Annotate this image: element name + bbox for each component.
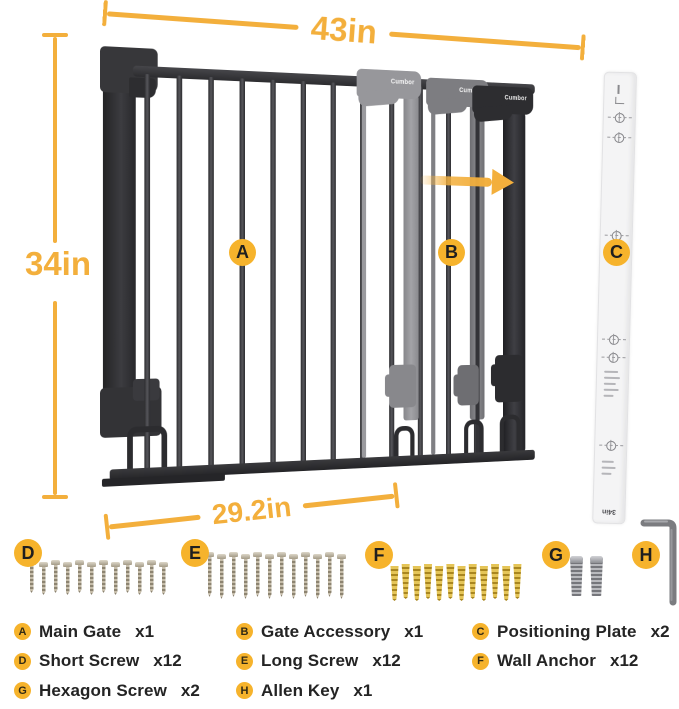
part-badge: H (236, 682, 253, 699)
dimension-line (389, 31, 581, 50)
part-badge: E (236, 653, 253, 670)
short-screw (63, 562, 72, 595)
short-screw (123, 560, 132, 593)
short-screw (75, 560, 84, 593)
screw-head (123, 560, 132, 565)
short-screw (99, 560, 108, 593)
screw-head (265, 554, 274, 559)
wall-anchor (468, 564, 477, 599)
screw-head (111, 562, 120, 567)
plate-mark (617, 85, 619, 94)
positioning-plate-illustration: 34in (592, 72, 637, 525)
screw-shaft (42, 567, 46, 595)
callout-main-gate: A (229, 239, 256, 266)
arrow-shaft (420, 175, 492, 187)
part-name: Positioning Plate (497, 622, 637, 642)
screw-shaft (280, 557, 284, 597)
screw-head (87, 562, 96, 567)
parts-list: A Main Gate x1 B Gate Accessory x1 C Pos… (14, 617, 674, 706)
screw-head (217, 554, 226, 559)
gate-bars (144, 74, 478, 470)
brand-logo: Cumbor (391, 79, 415, 87)
part-name: Main Gate (39, 622, 121, 642)
gate-bar (331, 82, 336, 461)
plate-hole-mark (606, 441, 616, 451)
screw-shaft (340, 559, 344, 599)
plate-text-line (602, 467, 616, 469)
part-name: Gate Accessory (261, 622, 390, 642)
parts-list-item-allen-key: H Allen Key x1 (236, 681, 472, 701)
screw-head (253, 552, 262, 557)
screw-shaft (150, 565, 154, 593)
parts-list-item-positioning-plate: C Positioning Plate x2 (472, 622, 674, 642)
screw-shaft (114, 567, 118, 595)
callout-gate-accessory: B (438, 239, 465, 266)
wall-anchor (424, 564, 433, 599)
dimension-line (53, 37, 57, 243)
screw-shaft (102, 565, 106, 593)
plate-mark (615, 97, 624, 104)
short-screw (87, 562, 96, 595)
overall-width-value: 43in (310, 9, 379, 52)
badge-allen-key: H (632, 541, 660, 569)
long-screw (289, 554, 298, 599)
parts-list-item-main-gate: A Main Gate x1 (14, 622, 236, 642)
screw-shaft (268, 559, 272, 599)
screw-head (99, 560, 108, 565)
wall-anchor (457, 566, 466, 601)
gate-bar (177, 75, 183, 468)
callout-positioning-plate: C (603, 239, 630, 266)
screw-shaft (220, 559, 224, 599)
part-qty: x12 (372, 651, 400, 671)
screw-shaft (304, 557, 308, 597)
parts-list-item-hexagon-screw: G Hexagon Screw x2 (14, 681, 236, 701)
short-screw (51, 560, 60, 593)
wall-anchors-row (390, 564, 522, 599)
wall-anchor (435, 566, 444, 601)
part-qty: x1 (135, 622, 154, 642)
part-badge: C (472, 623, 489, 640)
screw-shaft (232, 557, 236, 597)
badge-hexagon-screw: G (542, 541, 570, 569)
part-badge: A (14, 623, 31, 640)
long-screw (277, 552, 286, 597)
screw-head (229, 552, 238, 557)
wall-anchor (502, 566, 511, 601)
wall-anchor (412, 566, 421, 601)
product-diagram: 43in 34in 29.2in Cumbor Cumbor (0, 0, 679, 709)
screw-head (337, 554, 346, 559)
part-badge: D (14, 653, 31, 670)
screw-head (75, 560, 84, 565)
short-screws-row (27, 560, 168, 593)
screw-shaft (30, 565, 34, 593)
plate-hole-mark (609, 335, 619, 345)
part-qty: x2 (651, 622, 670, 642)
wall-anchor (446, 564, 455, 599)
screw-head (301, 552, 310, 557)
latch-handle: Cumbor (472, 85, 533, 115)
plate-hole-mark (614, 133, 624, 143)
plate-text-line (604, 389, 619, 391)
hexagon-screw (590, 556, 603, 596)
screw-shaft (78, 565, 82, 593)
dimension-tick (580, 34, 586, 60)
latch-rod (431, 105, 435, 454)
plate-print-text: 34in (593, 507, 624, 515)
overall-height-value: 34in (8, 245, 108, 283)
screw-shaft (292, 559, 296, 599)
part-name: Wall Anchor (497, 651, 596, 671)
short-screw (135, 562, 144, 595)
screw-shaft (256, 557, 260, 597)
part-name: Hexagon Screw (39, 681, 167, 701)
long-screw (301, 552, 310, 597)
plate-text-line (601, 473, 611, 475)
screw-head (241, 554, 250, 559)
part-name: Short Screw (39, 651, 139, 671)
screw-head (277, 552, 286, 557)
long-screw (337, 554, 346, 599)
dimension-line (53, 301, 57, 495)
dimension-tick (393, 482, 400, 508)
badge-wall-anchor: F (365, 541, 393, 569)
long-screw (325, 552, 334, 597)
short-screw (147, 560, 156, 593)
slide-direction-arrow-icon (420, 165, 515, 196)
bottom-lock-bracket (495, 355, 522, 403)
plate-text-line (603, 395, 613, 397)
part-badge: F (472, 653, 489, 670)
latch-rod (362, 97, 366, 458)
screw-shaft (66, 567, 70, 595)
wall-anchor (491, 564, 500, 599)
wall-anchor (479, 566, 488, 601)
plate-text-line (604, 371, 618, 373)
part-name: Allen Key (261, 681, 339, 701)
dimension-overall-height: 34in (42, 33, 68, 499)
parts-list-item-gate-accessory: B Gate Accessory x1 (236, 622, 472, 642)
screw-head (147, 560, 156, 565)
long-screw (217, 554, 226, 599)
gate-bar (301, 81, 306, 462)
gate-bar (446, 88, 451, 456)
badge-long-screw: E (181, 539, 209, 567)
part-badge: G (14, 682, 31, 699)
screw-shaft (328, 557, 332, 597)
part-qty: x12 (153, 651, 181, 671)
screw-head (289, 554, 298, 559)
wall-mount-post (103, 52, 136, 434)
long-screw (253, 552, 262, 597)
short-screw (159, 562, 168, 595)
screw-shaft (244, 559, 248, 599)
hexagon-screws-row (570, 556, 603, 596)
screw-head (63, 562, 72, 567)
badge-short-screw: D (14, 539, 42, 567)
gate-foot (464, 419, 484, 455)
long-screw (265, 554, 274, 599)
long-screw (313, 554, 322, 599)
gate-foot (500, 414, 521, 454)
part-qty: x2 (181, 681, 200, 701)
dimension-line (107, 11, 299, 30)
screw-head (51, 560, 60, 565)
parts-list-item-wall-anchor: F Wall Anchor x12 (472, 651, 674, 671)
short-screw (111, 562, 120, 595)
screw-shaft (208, 557, 212, 597)
part-qty: x1 (404, 622, 423, 642)
screw-shaft (316, 559, 320, 599)
dimension-line (303, 493, 395, 508)
plate-text-line (602, 461, 614, 463)
gate-bar (270, 80, 275, 464)
main-gate-illustration: Cumbor Cumbor Cumbor (100, 42, 538, 494)
wall-anchor (513, 564, 522, 599)
brand-logo: Cumbor (505, 95, 527, 102)
parts-list-item-short-screw: D Short Screw x12 (14, 651, 236, 671)
screw-shaft (138, 567, 142, 595)
screw-head (159, 562, 168, 567)
bottom-lock-bracket-ghost-2 (458, 365, 479, 406)
screw-head (135, 562, 144, 567)
long-screw (241, 554, 250, 599)
arrow-head (492, 169, 515, 196)
wall-anchor (390, 566, 399, 601)
long-screw (229, 552, 238, 597)
gate-bar (240, 78, 245, 465)
part-name: Long Screw (261, 651, 358, 671)
gate-width-value: 29.2in (210, 491, 292, 531)
latch-handle: Cumbor (357, 69, 421, 100)
hexagon-screw (570, 556, 583, 596)
screw-shaft (126, 565, 130, 593)
parts-list-item-long-screw: E Long Screw x12 (236, 651, 472, 671)
plate-text-line (604, 383, 616, 385)
screw-head (313, 554, 322, 559)
screw-shaft (162, 567, 166, 595)
dimension-line (109, 514, 201, 529)
screw-shaft (54, 565, 58, 593)
plate-text-line (604, 377, 620, 379)
part-badge: B (236, 623, 253, 640)
wall-anchor (401, 564, 410, 599)
plate-hole-mark (608, 353, 618, 363)
screw-head (325, 552, 334, 557)
plate-hole-mark (615, 113, 625, 123)
screw-head (39, 562, 48, 567)
gate-bar (208, 77, 214, 467)
short-screw (39, 562, 48, 595)
bottom-lock-bracket-ghost-1 (389, 364, 416, 408)
dimension-tick (42, 495, 68, 499)
part-qty: x1 (353, 681, 372, 701)
gate-bar (144, 74, 150, 470)
part-qty: x12 (610, 651, 638, 671)
screw-shaft (90, 567, 94, 595)
long-screws-row (205, 552, 346, 597)
